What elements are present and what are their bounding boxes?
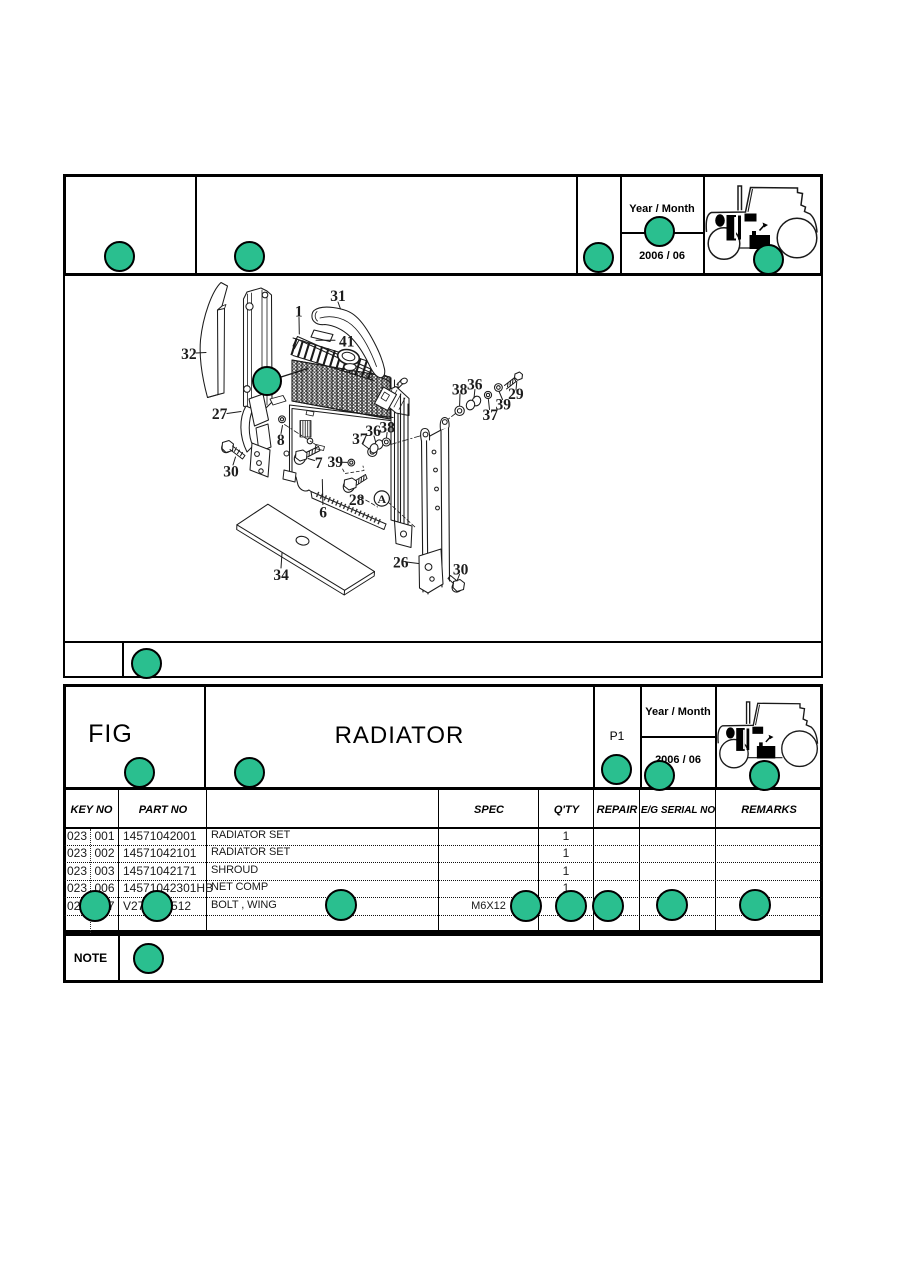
svg-text:32: 32 — [181, 346, 197, 363]
svg-text:27: 27 — [212, 406, 228, 423]
svg-text:39: 39 — [327, 454, 343, 471]
svg-text:28: 28 — [349, 492, 365, 509]
svg-text:38: 38 — [452, 382, 468, 399]
svg-text:1: 1 — [295, 304, 303, 321]
svg-text:30: 30 — [453, 562, 469, 579]
svg-text:7: 7 — [315, 455, 323, 472]
svg-text:6: 6 — [319, 504, 327, 521]
svg-text:41: 41 — [339, 334, 355, 351]
svg-text:37: 37 — [352, 431, 368, 448]
svg-text:8: 8 — [277, 432, 285, 449]
svg-text:36: 36 — [467, 377, 483, 394]
svg-text:34: 34 — [273, 567, 289, 584]
svg-text:26: 26 — [393, 555, 409, 572]
svg-text:30: 30 — [223, 463, 239, 480]
svg-text:31: 31 — [330, 288, 346, 305]
svg-text:39: 39 — [495, 397, 511, 414]
svg-text:A: A — [377, 492, 386, 506]
svg-text:38: 38 — [379, 420, 395, 437]
